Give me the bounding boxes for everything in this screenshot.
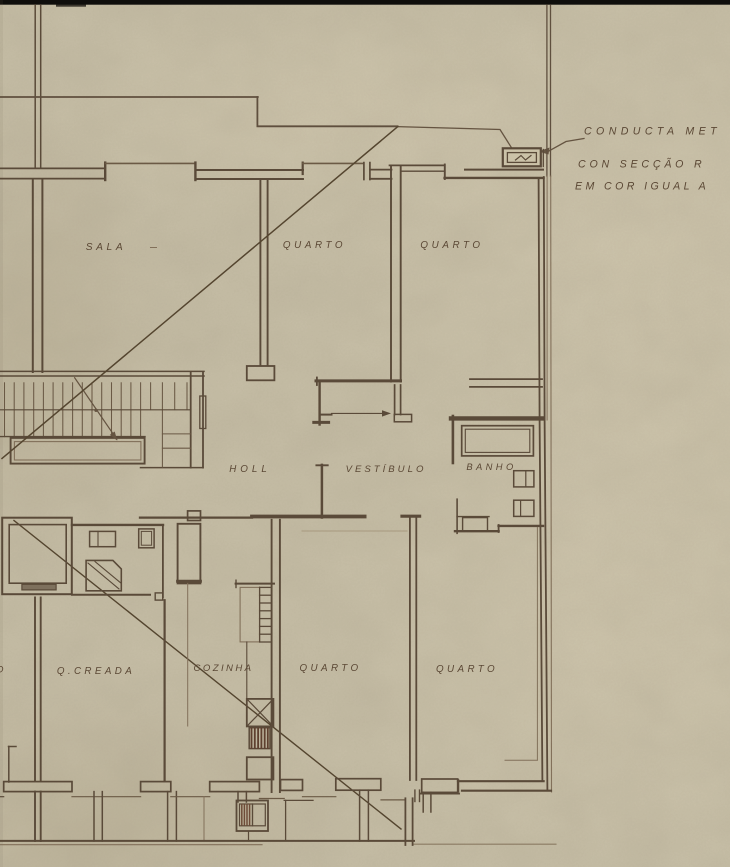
svg-text:QUARTO: QUARTO <box>436 664 498 675</box>
svg-text:Q.CREADA: Q.CREADA <box>57 666 135 677</box>
svg-text:COZINHA: COZINHA <box>194 663 254 674</box>
svg-text:QUARTO: QUARTO <box>420 240 483 251</box>
svg-text:EM COR IGUAL A: EM COR IGUAL A <box>575 181 709 193</box>
svg-text:O: O <box>0 665 5 676</box>
svg-text:QUARTO: QUARTO <box>300 663 362 674</box>
svg-text:QUARTO: QUARTO <box>283 240 346 251</box>
svg-text:SALA: SALA <box>86 242 126 253</box>
svg-text:HOLL: HOLL <box>229 464 271 475</box>
svg-text:CONDUCTA MET: CONDUCTA MET <box>584 126 721 138</box>
svg-text:CON SECÇÃO R: CON SECÇÃO R <box>578 158 705 171</box>
svg-text:VESTÍBULO: VESTÍBULO <box>346 464 427 475</box>
svg-text:BANHO: BANHO <box>466 461 516 472</box>
